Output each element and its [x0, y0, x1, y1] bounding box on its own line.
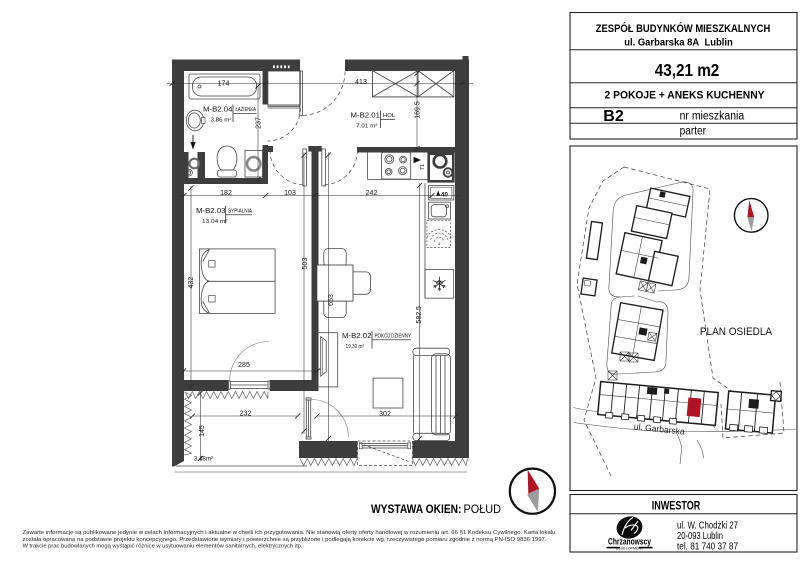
svg-text:169.5: 169.5: [414, 101, 421, 119]
svg-text:została opracowana na podstawi: została opracowana na podstawie projektu…: [23, 537, 547, 543]
svg-text:43,21 m2: 43,21 m2: [655, 60, 720, 80]
svg-text:182: 182: [220, 190, 232, 197]
svg-text:SYPIALNIA: SYPIALNIA: [228, 209, 252, 215]
svg-text:285: 285: [238, 362, 250, 369]
svg-text:Zawarte informacje są publikow: Zawarte informacje są publikowane jedyni…: [23, 530, 556, 536]
svg-text:nr mieszkania: nr mieszkania: [680, 111, 745, 123]
svg-text:M-B2.01: M-B2.01: [351, 111, 381, 120]
svg-text:tel. 81 740 37 87: tel. 81 740 37 87: [677, 542, 738, 553]
svg-text:PLAN OSIEDLA: PLAN OSIEDLA: [700, 326, 773, 338]
svg-text:B2: B2: [603, 108, 624, 125]
svg-text:ul. Garbarska 8A Lublin: ul. Garbarska 8A Lublin: [624, 37, 733, 48]
svg-text:POKÓJ DZIENNY: POKÓJ DZIENNY: [375, 333, 412, 340]
svg-text:242: 242: [366, 190, 378, 197]
svg-text:HOL: HOL: [383, 113, 395, 119]
svg-text:582.5: 582.5: [416, 306, 423, 324]
svg-text:Chrzanowscy: Chrzanowscy: [608, 537, 652, 547]
svg-text:ul. W. Chodżki 27: ul. W. Chodżki 27: [677, 521, 738, 532]
svg-text:3.48m²: 3.48m²: [194, 456, 213, 463]
svg-text:19.30 m²: 19.30 m²: [346, 344, 365, 350]
svg-text:ŁAZIENKA: ŁAZIENKA: [236, 107, 257, 113]
svg-text:POŁUD: POŁUD: [464, 502, 502, 516]
svg-text:ZESPÓŁ BUDYNKÓW MIESZKALNYCH: ZESPÓŁ BUDYNKÓW MIESZKALNYCH: [596, 22, 771, 35]
svg-text:M-B2.04: M-B2.04: [203, 105, 233, 114]
svg-text:M-B2.03: M-B2.03: [196, 206, 226, 215]
svg-text:103: 103: [284, 190, 296, 197]
svg-text:parter: parter: [680, 125, 707, 137]
svg-text:232: 232: [240, 411, 252, 418]
svg-text:2 POKOJE + ANEKS KUCHENNY: 2 POKOJE + ANEKS KUCHENNY: [605, 90, 766, 102]
svg-text:7.01 m²: 7.01 m²: [356, 124, 378, 130]
svg-text:237: 237: [256, 117, 263, 129]
svg-text:M-B2.02: M-B2.02: [342, 331, 372, 340]
svg-text:174: 174: [218, 80, 230, 87]
svg-text:13.04 m²: 13.04 m²: [202, 219, 228, 225]
svg-text:W trakcie prac budowlanych mog: W trakcie prac budowlanych mogą wystąpić…: [23, 544, 303, 550]
svg-text:ul. Garbarska: ul. Garbarska: [633, 421, 685, 436]
svg-text:145: 145: [199, 425, 206, 437]
svg-text:653: 653: [328, 294, 335, 306]
svg-text:WYSTAWA OKIEN:: WYSTAWA OKIEN:: [371, 502, 462, 516]
svg-text:DEVELOPMENT: DEVELOPMENT: [616, 546, 644, 550]
svg-text:503: 503: [302, 258, 309, 270]
svg-text:71: 71: [420, 164, 426, 170]
svg-text:302: 302: [379, 411, 391, 418]
svg-text:413: 413: [355, 79, 367, 86]
svg-text:3.86 m²: 3.86 m²: [211, 118, 232, 124]
svg-text:432: 432: [188, 277, 195, 289]
svg-text:INWESTOR: INWESTOR: [652, 499, 701, 513]
svg-text:20-093 Lublin: 20-093 Lublin: [677, 531, 723, 542]
